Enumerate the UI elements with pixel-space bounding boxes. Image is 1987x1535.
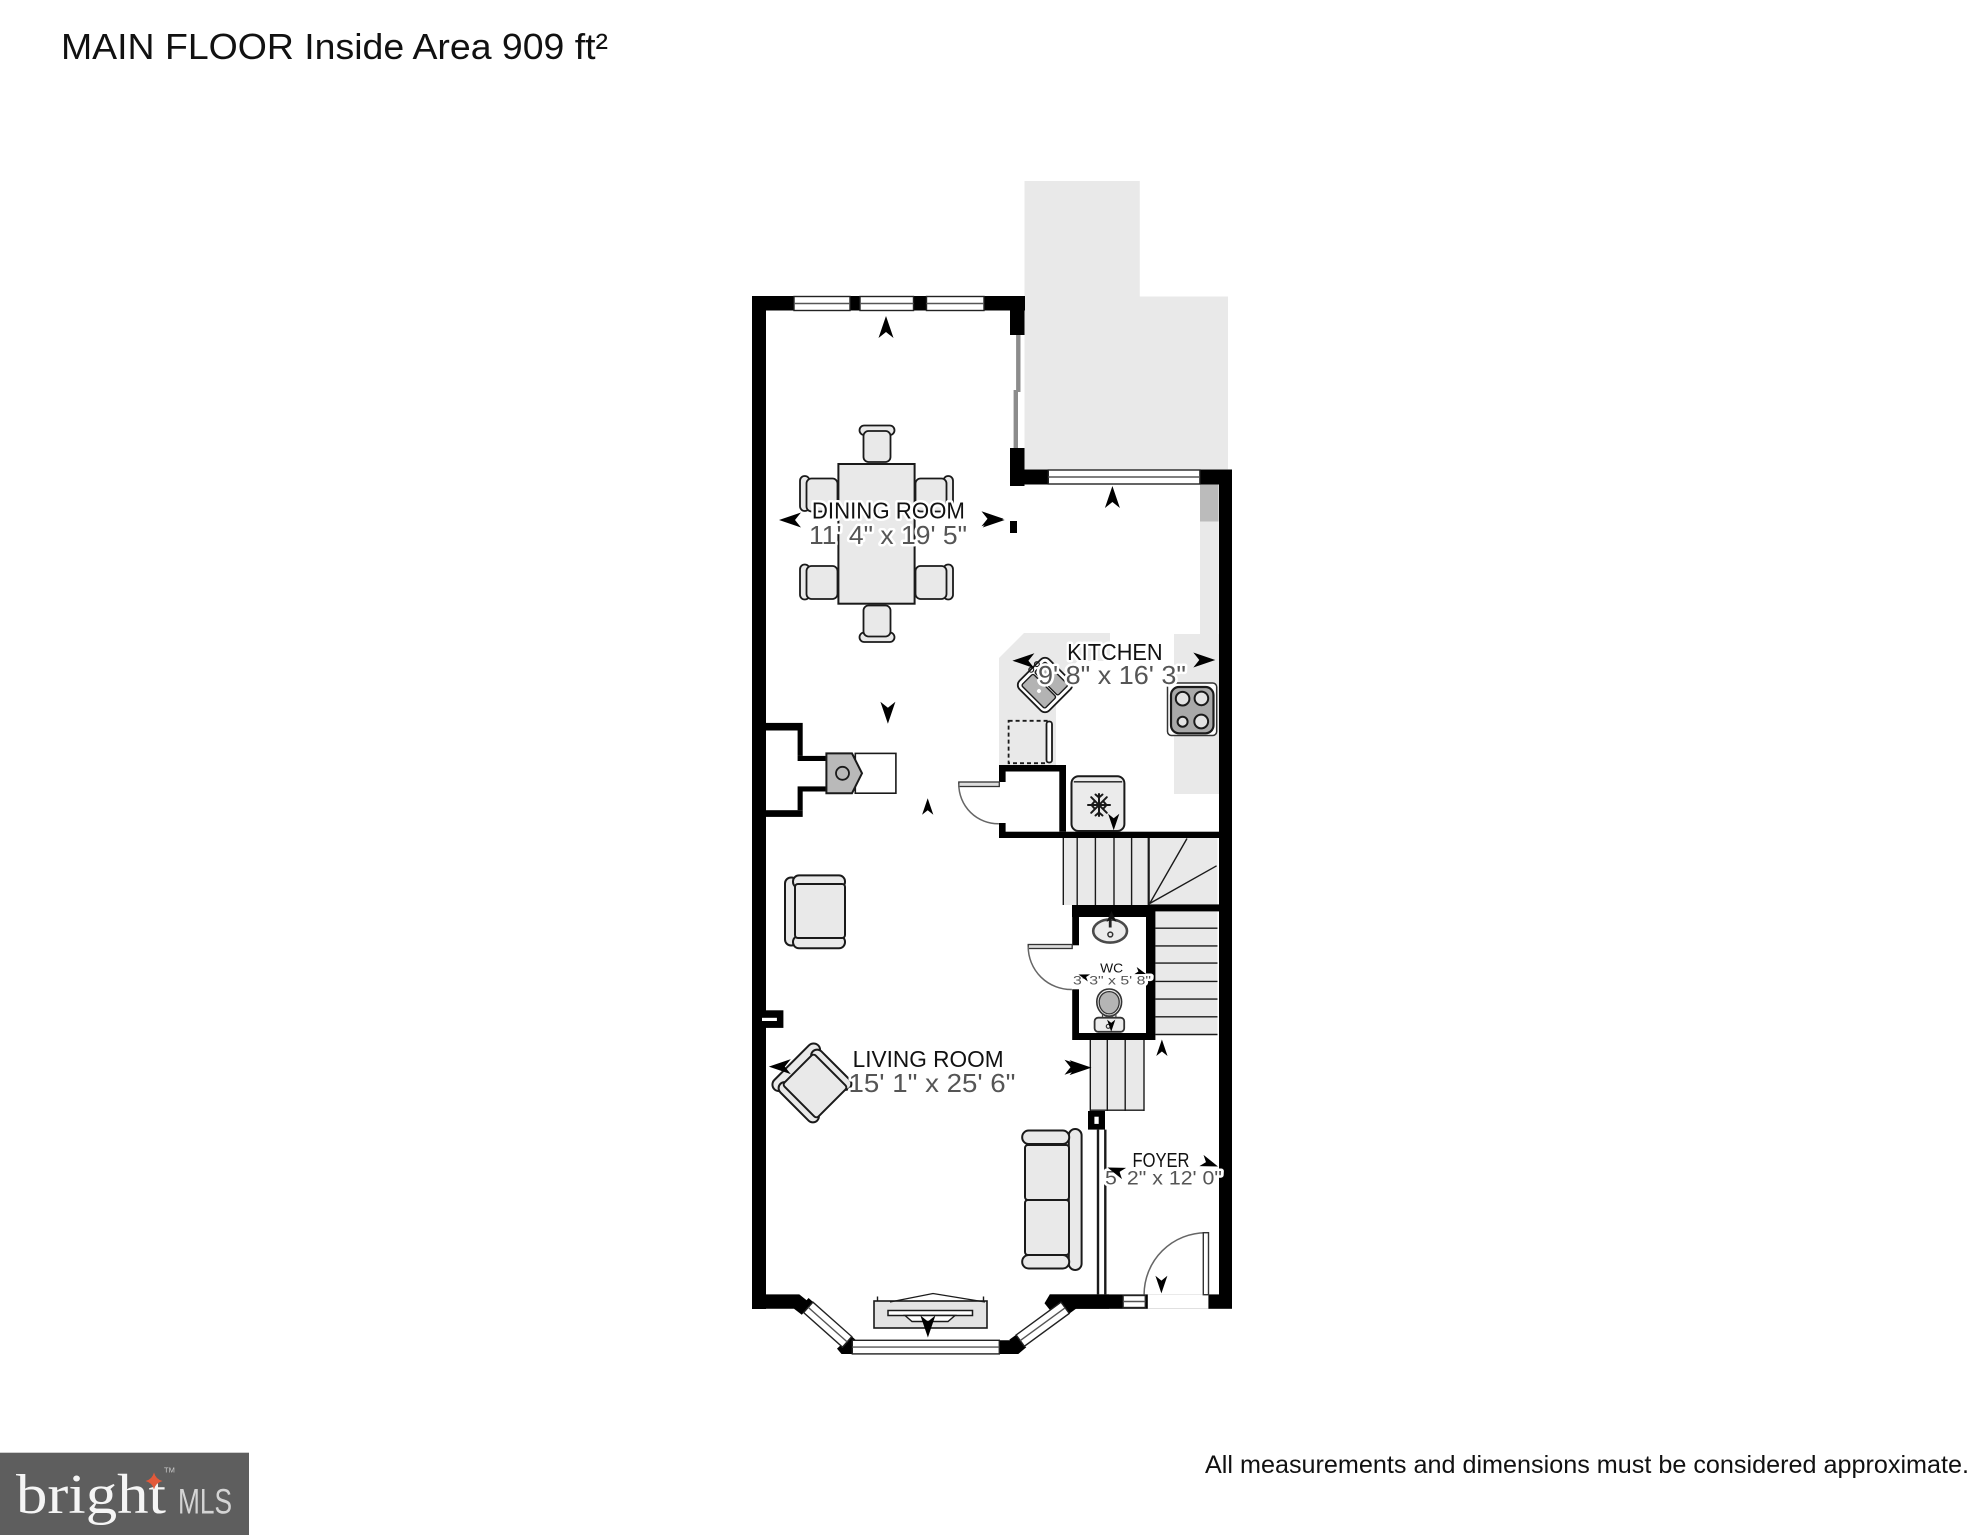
svg-text:TM: TM [164, 1466, 175, 1475]
svg-text:MLS: MLS [178, 1483, 232, 1522]
svg-text:bright: bright [16, 1464, 166, 1526]
svg-text:11' 4" x 19' 5": 11' 4" x 19' 5" [809, 520, 967, 550]
svg-text:MAIN FLOOR Inside Area 909 ft²: MAIN FLOOR Inside Area 909 ft² [61, 26, 608, 67]
svg-text:WC: WC [1100, 960, 1123, 975]
svg-text:5' 2" x 12' 0": 5' 2" x 12' 0" [1105, 1169, 1222, 1190]
svg-text:9' 8" x 16' 3": 9' 8" x 16' 3" [1038, 660, 1186, 690]
svg-text:All measurements and dimension: All measurements and dimensions must be … [1205, 1451, 1969, 1479]
svg-text:15' 1" x 25' 6": 15' 1" x 25' 6" [849, 1068, 1016, 1098]
